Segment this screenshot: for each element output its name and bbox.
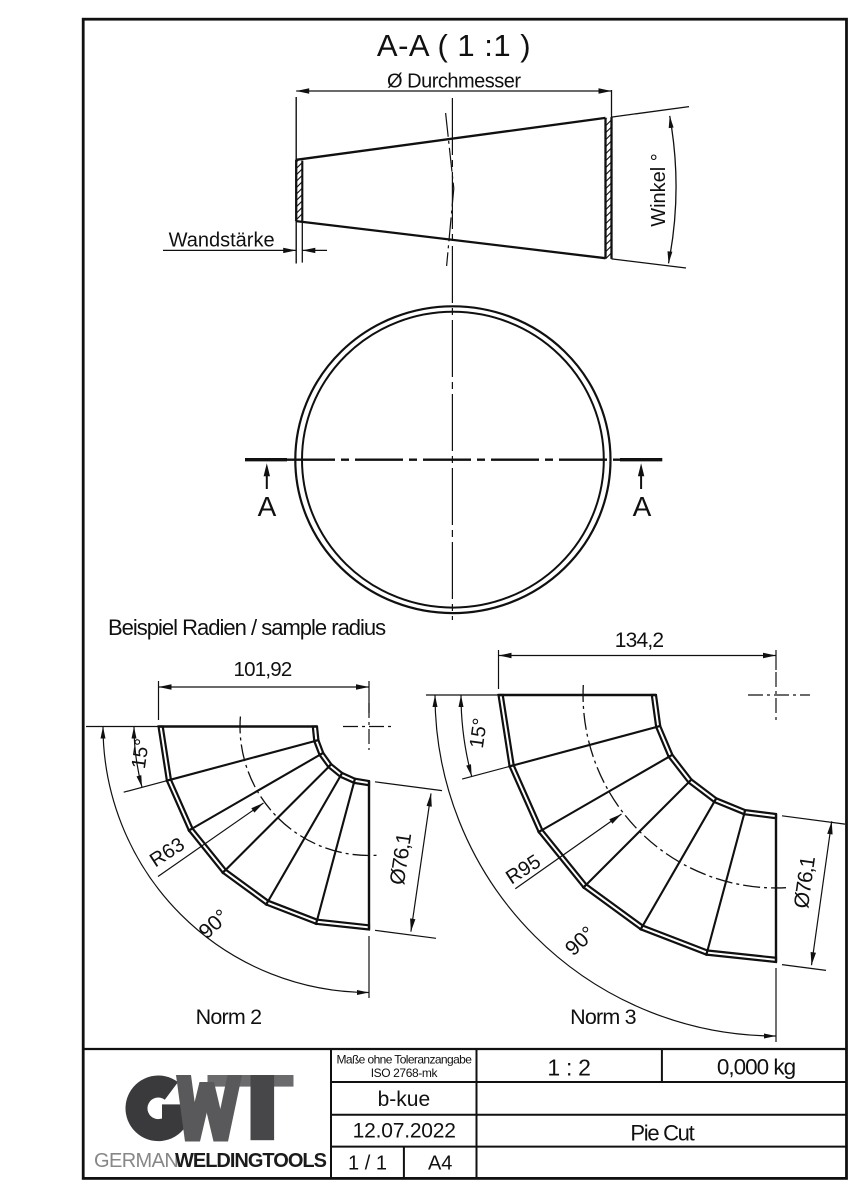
svg-text:WELDINGTOOLS: WELDINGTOOLS (175, 1150, 327, 1172)
svg-text:101,92: 101,92 (234, 658, 292, 681)
svg-text:Norm 3: Norm 3 (570, 1005, 637, 1029)
svg-text:15°: 15° (128, 737, 154, 770)
svg-text:0,000 kg: 0,000 kg (717, 1055, 796, 1080)
svg-text:A: A (258, 491, 277, 522)
svg-text:Norm 2: Norm 2 (196, 1005, 262, 1029)
svg-text:GERMAN: GERMAN (94, 1150, 178, 1172)
svg-text:A-A ( 1 :1 ): A-A ( 1 :1 ) (377, 28, 531, 63)
svg-text:134,2: 134,2 (615, 629, 664, 652)
svg-text:ISO 2768-mk: ISO 2768-mk (371, 1066, 439, 1080)
svg-text:A4: A4 (428, 1152, 452, 1174)
svg-text:Pie Cut: Pie Cut (630, 1121, 694, 1146)
svg-text:A: A (633, 491, 652, 522)
svg-text:Beispiel Radien / sample radiu: Beispiel Radien / sample radius (108, 615, 386, 640)
svg-text:Winkel °: Winkel ° (648, 153, 670, 227)
svg-text:1 : 2: 1 : 2 (547, 1054, 590, 1080)
svg-text:15°: 15° (466, 717, 492, 750)
svg-text:Ø Durchmesser: Ø Durchmesser (387, 71, 521, 93)
svg-text:1 / 1: 1 / 1 (348, 1152, 387, 1174)
svg-text:Maße ohne Toleranzangabe: Maße ohne Toleranzangabe (336, 1053, 472, 1067)
svg-text:b-kue: b-kue (378, 1088, 431, 1111)
svg-text:12.07.2022: 12.07.2022 (353, 1119, 456, 1142)
svg-text:Wandstärke: Wandstärke (169, 230, 275, 252)
